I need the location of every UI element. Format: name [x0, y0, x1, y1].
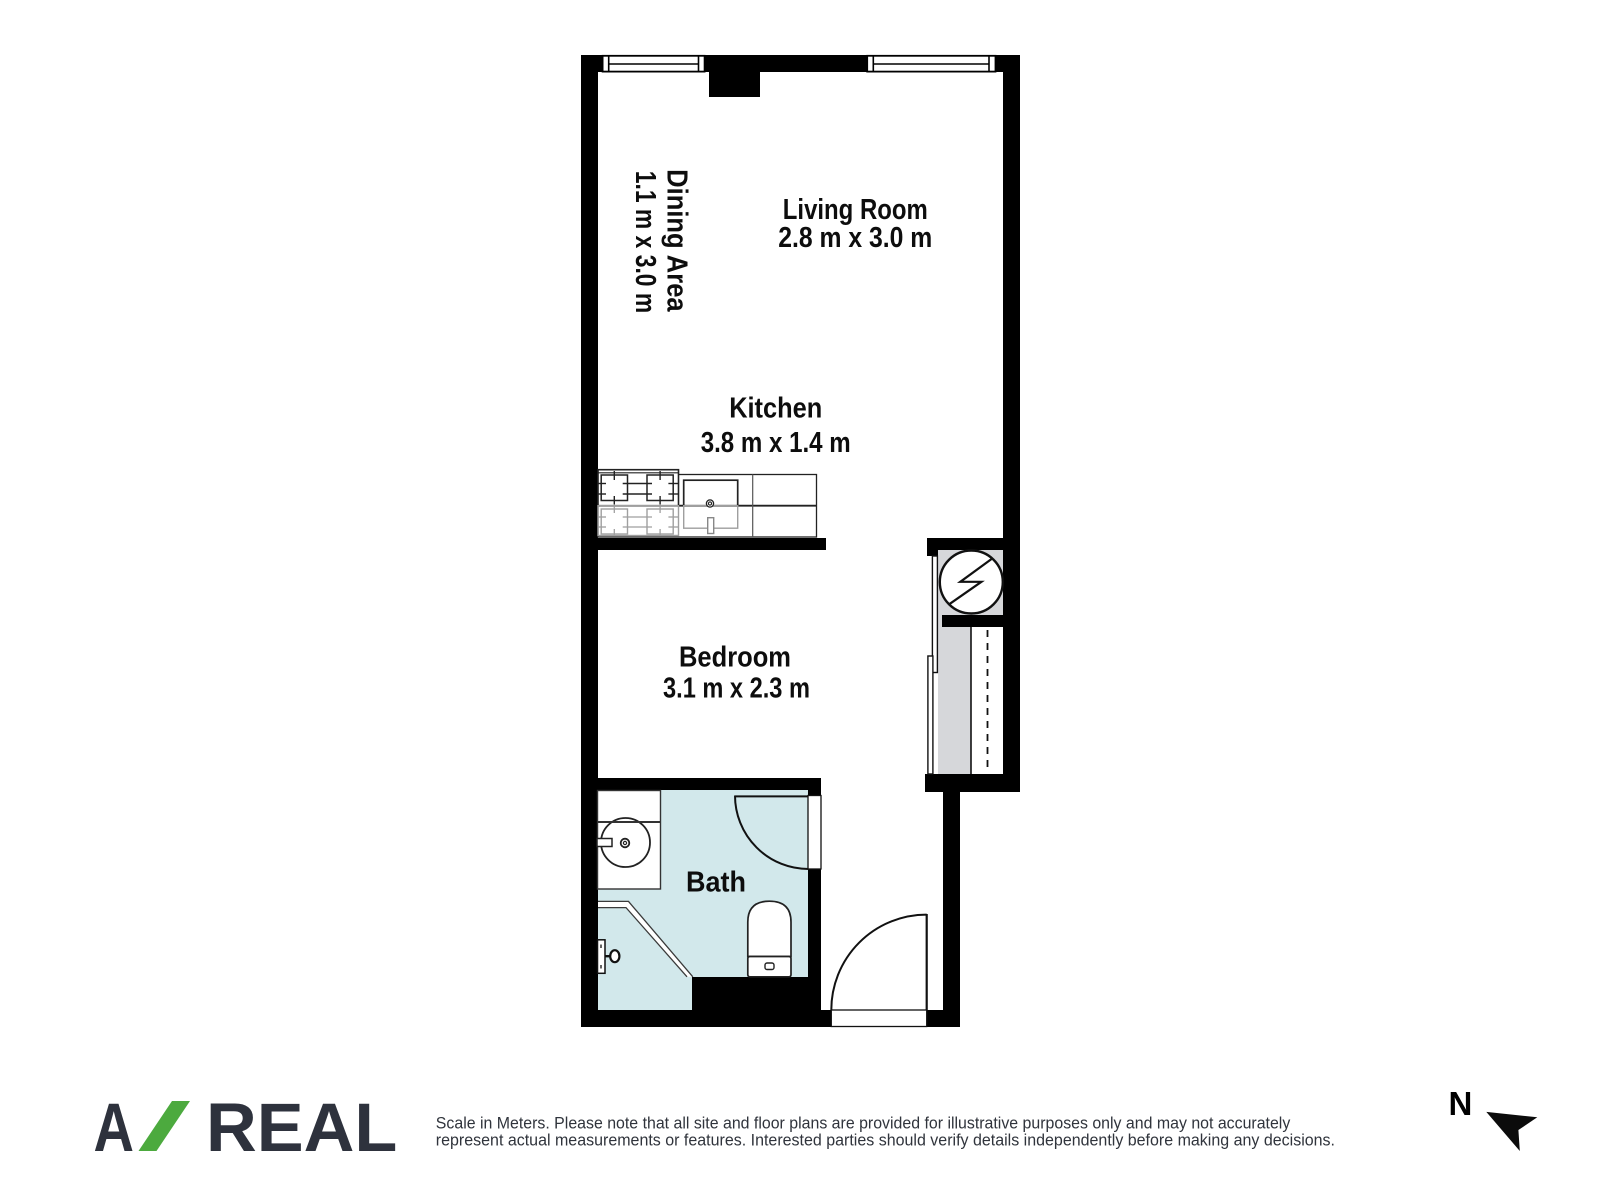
svg-text:Bath: Bath — [686, 867, 746, 899]
svg-text:1.1 m x 3.0 m: 1.1 m x 3.0 m — [629, 171, 661, 314]
svg-text:3.1 m x 2.3 m: 3.1 m x 2.3 m — [663, 673, 810, 705]
svg-text:A: A — [94, 1089, 135, 1166]
svg-text:REAL: REAL — [206, 1089, 397, 1166]
svg-text:N: N — [1448, 1085, 1472, 1122]
svg-text:2.8 m x 3.0 m: 2.8 m x 3.0 m — [778, 222, 932, 254]
svg-text:Dining Area: Dining Area — [661, 169, 693, 312]
svg-text:Kitchen: Kitchen — [729, 393, 822, 425]
svg-text:Bedroom: Bedroom — [679, 642, 791, 674]
svg-text:Scale in Meters. Please note t: Scale in Meters. Please note that all si… — [436, 1115, 1291, 1133]
svg-text:represent actual measurements: represent actual measurements or feature… — [436, 1131, 1335, 1149]
svg-text:3.8 m x 1.4 m: 3.8 m x 1.4 m — [701, 427, 851, 459]
